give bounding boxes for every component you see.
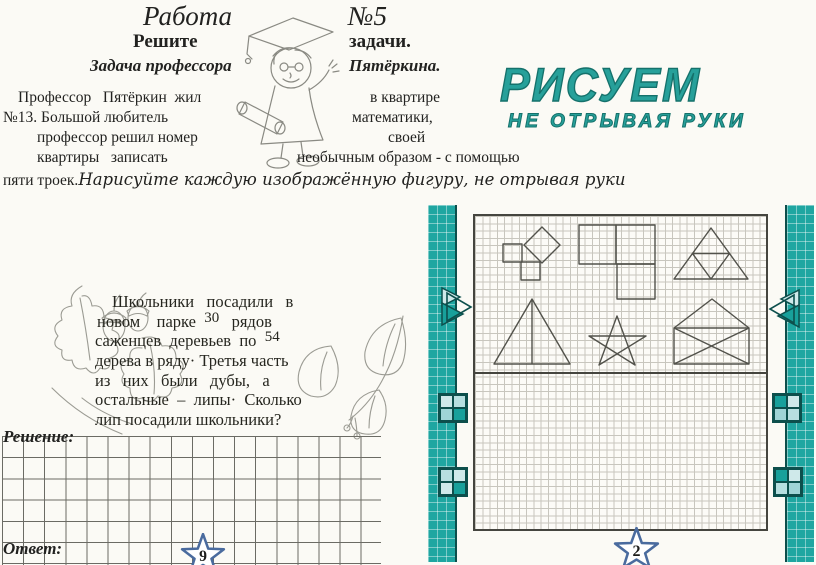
decor-cell: [453, 395, 466, 408]
heading-right: задачи.: [349, 31, 411, 53]
decor-cell: [788, 482, 801, 495]
arrow-left-icon: [768, 285, 806, 329]
task-line: остальные – липы· Сколько: [95, 390, 302, 410]
paragraph-line: квартиры записать: [37, 149, 168, 167]
task-line: Школьники посадили в: [112, 292, 293, 312]
decor-cell: [440, 469, 453, 482]
lesson-logo-title: РИСУЕМ: [500, 57, 701, 112]
decor-squares-block: [438, 467, 468, 497]
decor-cell: [775, 482, 788, 495]
page-title-work: Работа: [143, 1, 232, 32]
paragraph-plain-part: пяти троек.: [3, 172, 78, 189]
decor-cell: [774, 395, 787, 408]
task-line: саженцев деревьев по 54: [95, 331, 280, 351]
rows-count: 30: [204, 310, 219, 326]
task-line: лип посадили школьники?: [95, 410, 281, 430]
figure-l-shaped-squares: [579, 225, 655, 299]
paragraph-line: №13. Большой любитель: [3, 109, 168, 127]
decor-squares-block: [772, 393, 802, 423]
solution-label: Решение:: [3, 427, 74, 447]
task-line-part: саженцев деревьев по: [95, 331, 265, 350]
decor-cell: [453, 469, 466, 482]
task-line: дерева в ряду· Третья часть: [95, 351, 289, 371]
paragraph-line: пяти троек.Нарисуйте каждую изображённую…: [3, 170, 625, 190]
task-line-part: рядов: [219, 312, 272, 331]
page-number: 9: [199, 548, 207, 565]
trees-per-row-count: 54: [265, 329, 280, 345]
figure-envelope: [674, 299, 749, 364]
figures-to-draw: [475, 216, 766, 529]
decor-cell: [788, 469, 801, 482]
answer-label: Ответ:: [3, 539, 62, 559]
page-number: 2: [632, 543, 640, 560]
decor-cell: [453, 408, 466, 421]
decor-strip-left: [428, 205, 457, 562]
shoe: [267, 158, 289, 168]
paragraph-line: своей: [388, 129, 425, 147]
paragraph-line: в квартире: [370, 89, 440, 107]
decor-cell: [774, 408, 787, 421]
decor-strip-right: [785, 205, 814, 562]
worksheet-scan: Работа №5 Решите задачи. Задача профессо…: [0, 0, 816, 565]
decor-cell: [440, 408, 453, 421]
figure-pythagoras-squares: [503, 227, 560, 280]
scroll: [239, 102, 283, 134]
subheading-right: Пятёркина.: [349, 56, 441, 76]
paragraph-line: профессор решил номер: [37, 129, 198, 147]
decor-cell: [787, 408, 800, 421]
figure-triangle-with-median: [494, 299, 570, 364]
heading-left: Решите: [133, 31, 198, 53]
page-number-star-left: 9: [180, 533, 226, 565]
paragraph-line: математики,: [352, 109, 433, 127]
figure-five-pointed-star: [589, 316, 646, 365]
subheading-left: Задача профессора: [90, 56, 232, 76]
decor-cell: [440, 482, 453, 495]
graduation-cap-icon: [249, 18, 333, 50]
decor-cell: [440, 395, 453, 408]
paragraph-line: необычным образом - с помощью: [297, 149, 520, 167]
task-line: из них были дубы, а: [95, 371, 270, 391]
paragraph-line: Профессор Пятёркин жил: [18, 89, 201, 107]
page-number-star-right: 2: [613, 527, 660, 565]
decor-cell: [775, 469, 788, 482]
waving-hand: [329, 60, 339, 72]
decor-cell: [453, 482, 466, 495]
draw-instruction-italic: Нарисуйте каждую изображённую фигуру, не…: [78, 170, 625, 189]
decor-squares-block: [773, 467, 803, 497]
decor-squares-block: [438, 393, 468, 423]
arrow-right-icon: [435, 283, 473, 327]
figure-triangle-with-midsegments: [674, 228, 748, 279]
decor-cell: [787, 395, 800, 408]
task-line: новом парке 30 рядов: [97, 312, 272, 332]
page-title-number: №5: [348, 1, 387, 32]
task-line-part: новом парке: [97, 312, 204, 331]
lesson-logo-subtitle: НЕ ОТРЫВАЯ РУКИ: [508, 111, 746, 133]
